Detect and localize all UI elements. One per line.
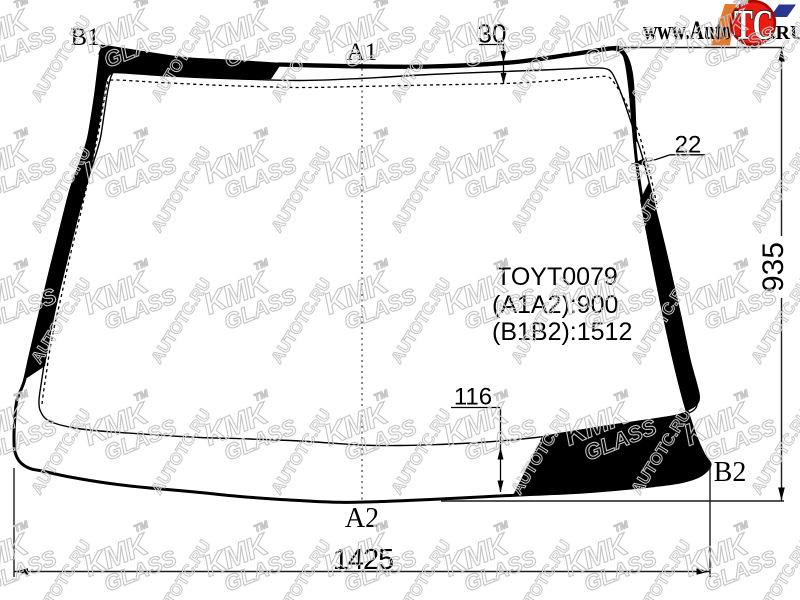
svg-text:935: 935: [757, 242, 790, 292]
